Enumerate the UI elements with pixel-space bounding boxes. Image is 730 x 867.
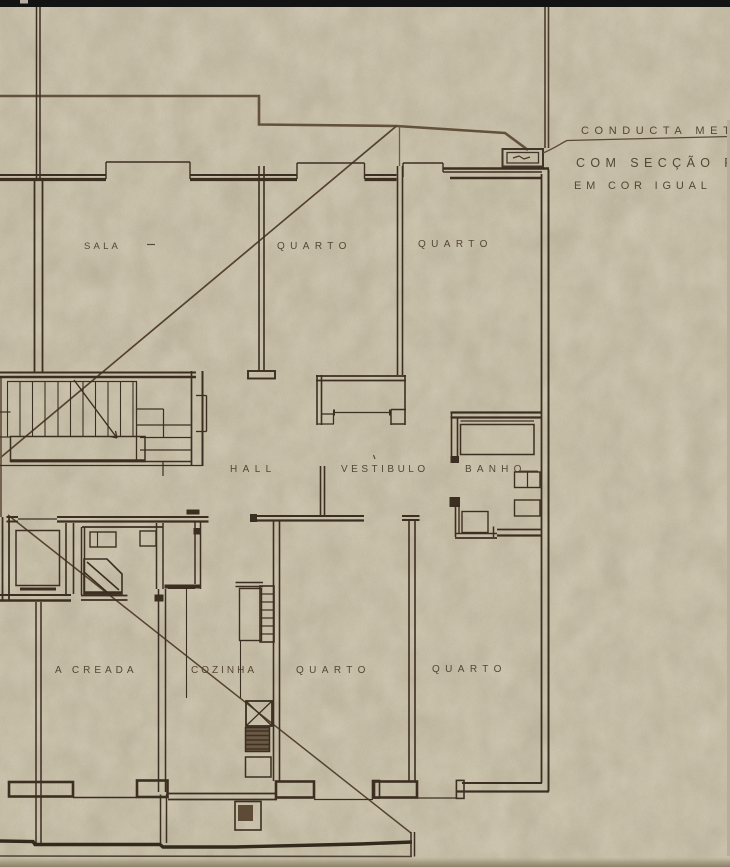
svg-text:HALL: HALL [230, 464, 277, 475]
svg-text:SALA: SALA [84, 241, 121, 252]
svg-text:QUARTO: QUARTO [432, 664, 507, 675]
svg-text:COM SECÇÃO R: COM SECÇÃO R [576, 156, 730, 170]
svg-text:COZINHA: COZINHA [191, 665, 257, 676]
svg-text:EM COR IGUAL: EM COR IGUAL [574, 180, 712, 192]
svg-text:A CREADA: A CREADA [55, 665, 138, 676]
svg-text:QUARTO: QUARTO [418, 239, 493, 250]
svg-text:CONDUCTA MET: CONDUCTA MET [581, 125, 730, 137]
svg-text:BANHO: BANHO [465, 464, 527, 475]
svg-text:VESTIBULO: VESTIBULO [341, 464, 429, 475]
svg-text:QUARTO: QUARTO [296, 665, 371, 676]
svg-text:QUARTO: QUARTO [277, 241, 352, 252]
